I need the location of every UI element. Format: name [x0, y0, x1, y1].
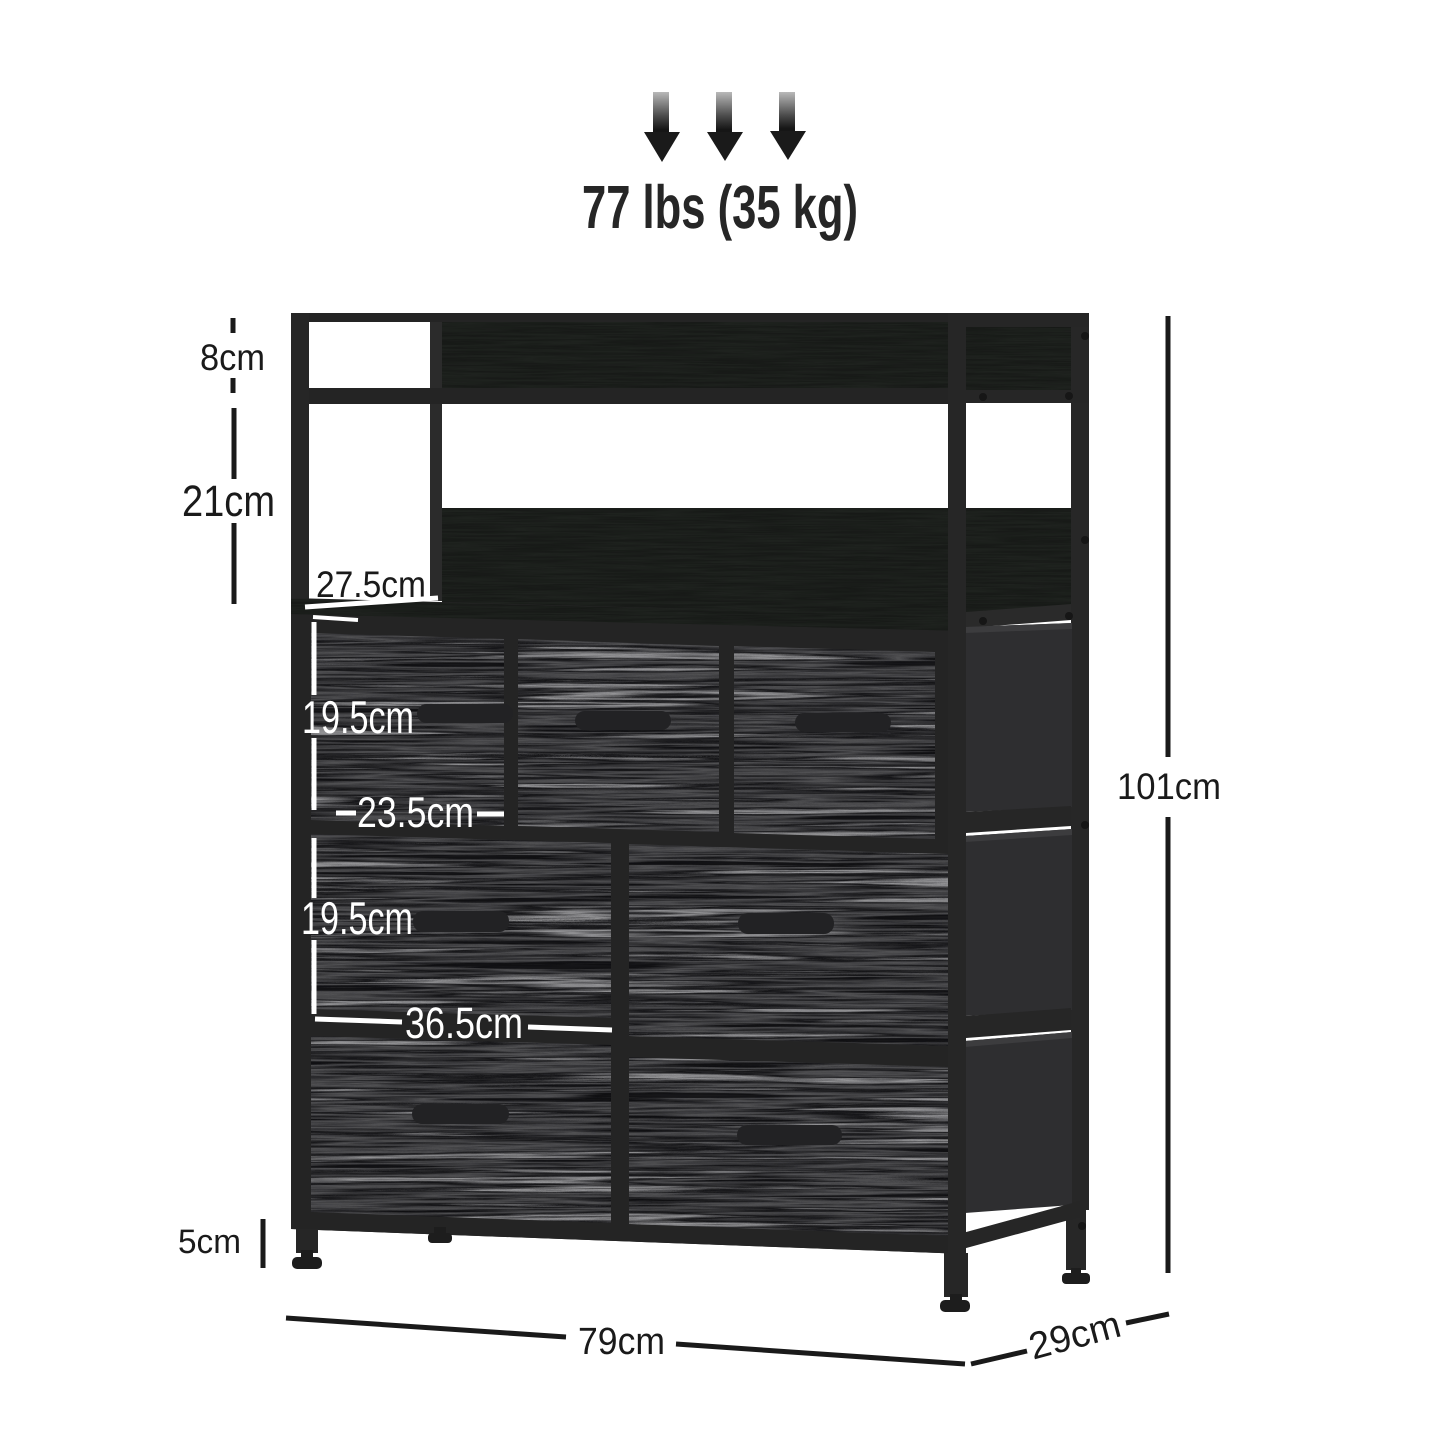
svg-text:36.5cm: 36.5cm — [405, 999, 523, 1048]
svg-text:79cm: 79cm — [578, 1321, 665, 1363]
svg-text:77 lbs (35 kg): 77 lbs (35 kg) — [582, 173, 858, 241]
svg-text:8cm: 8cm — [200, 337, 265, 378]
svg-text:19.5cm: 19.5cm — [302, 691, 414, 743]
svg-text:101cm: 101cm — [1117, 766, 1221, 807]
svg-text:19.5cm: 19.5cm — [301, 892, 413, 944]
svg-text:23.5cm: 23.5cm — [357, 789, 474, 837]
svg-text:5cm: 5cm — [178, 1223, 241, 1261]
svg-text:21cm: 21cm — [182, 477, 275, 526]
